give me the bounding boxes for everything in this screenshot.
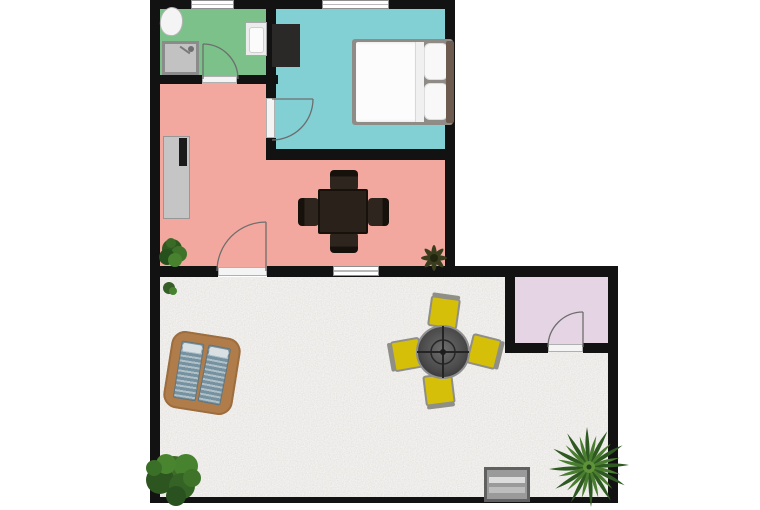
bed-duvet (356, 42, 419, 122)
wall-storage-left (505, 266, 515, 353)
bed-pillow (424, 43, 448, 80)
dining-chair-west[interactable] (298, 198, 319, 226)
floor-plan-canvas (0, 0, 760, 510)
grill-box[interactable] (484, 467, 530, 502)
living-plant-southwest[interactable] (158, 233, 192, 269)
wall-bedroom-bottom (266, 149, 455, 160)
shower[interactable] (162, 41, 199, 75)
wall-bathroom-bottom-right (237, 75, 278, 84)
tv-on-sideboard (179, 138, 187, 166)
patio-grass-tuft (160, 279, 180, 299)
lounger-cushion (182, 343, 202, 354)
front-door[interactable] (218, 267, 267, 276)
grill-slat (489, 477, 525, 483)
bathroom-sink[interactable] (245, 22, 267, 56)
storage-door[interactable] (548, 344, 583, 352)
wall-storage-bottom-left (505, 343, 548, 353)
bedroom-window[interactable] (322, 0, 389, 9)
dining-chair-east[interactable] (368, 198, 389, 226)
wardrobe[interactable] (272, 24, 300, 67)
palm-plant-southeast[interactable] (543, 423, 633, 510)
bed-headboard (446, 41, 454, 123)
bathroom-window[interactable] (191, 0, 234, 9)
sideboard[interactable] (163, 136, 190, 219)
dining-chair-north[interactable] (330, 170, 358, 191)
grill-slat (489, 487, 525, 493)
sun-lounger-set[interactable] (161, 329, 242, 417)
bed-duvet-fold (415, 42, 424, 122)
bed-pillow (424, 83, 448, 120)
double-bed[interactable] (352, 39, 453, 125)
storage-room-floor (510, 271, 610, 347)
living-room-window[interactable] (333, 266, 379, 276)
patio-round-table[interactable] (415, 324, 471, 380)
bathroom-door[interactable] (202, 76, 237, 83)
wall-storage-bottom-right (583, 343, 618, 353)
bush-plant-southwest[interactable] (136, 438, 212, 510)
dining-table[interactable] (318, 189, 368, 234)
wall-bathroom-bottom-left (150, 75, 202, 84)
living-plant-southeast[interactable] (420, 244, 448, 272)
bedroom-door[interactable] (266, 98, 275, 138)
dining-chair-south[interactable] (330, 232, 358, 253)
sink-basin (249, 27, 264, 53)
lounger-cushion (209, 347, 229, 358)
